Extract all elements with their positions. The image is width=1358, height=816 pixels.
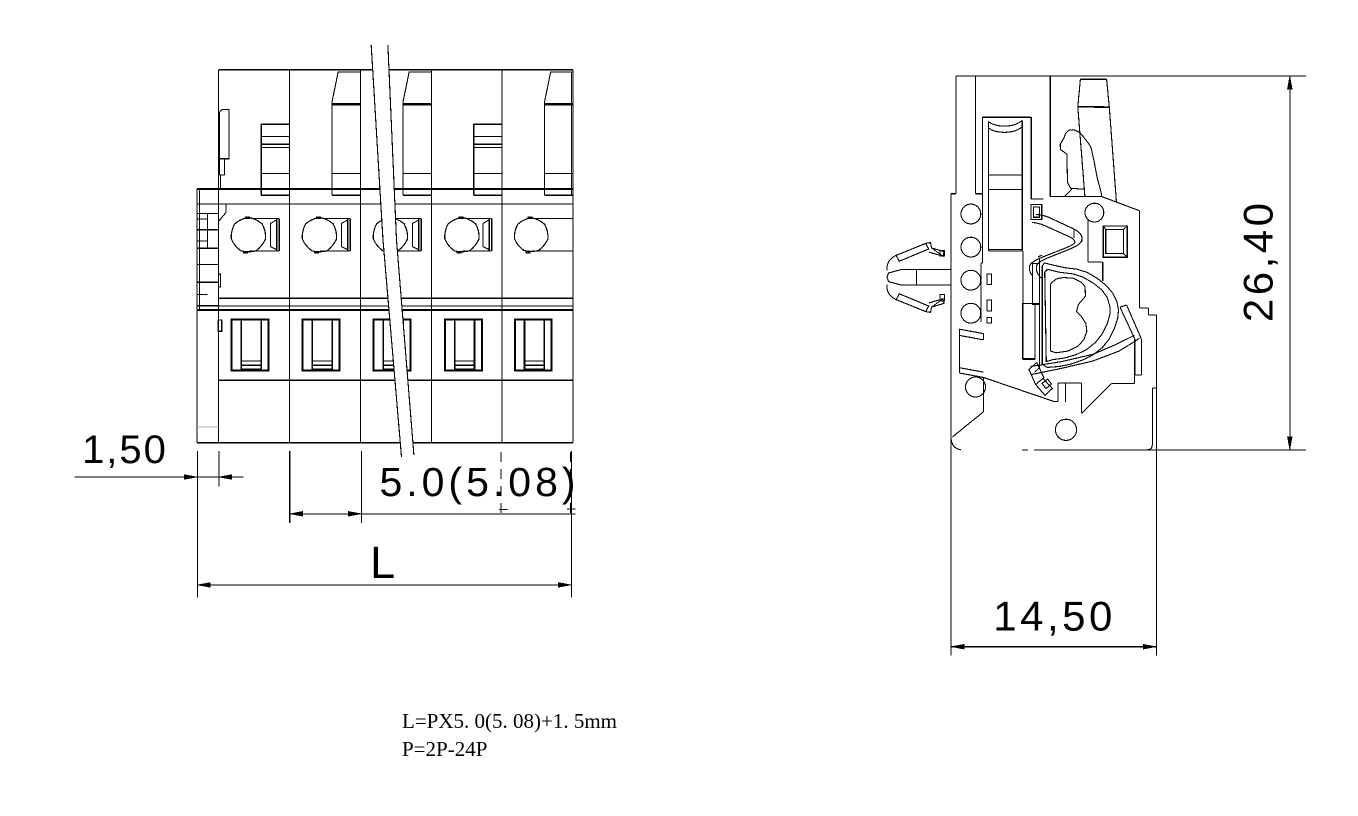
svg-text:26,40: 26,40 [1235,199,1282,322]
svg-text:14,50: 14,50 [993,593,1116,640]
svg-text:L=PX5. 0(5. 08)+1. 5mm: L=PX5. 0(5. 08)+1. 5mm [402,709,617,733]
svg-text:L: L [370,537,395,588]
svg-text:1,50: 1,50 [82,428,168,472]
svg-text:P=2P-24P: P=2P-24P [402,737,487,761]
svg-text:5.0(5.08): 5.0(5.08) [379,459,579,505]
